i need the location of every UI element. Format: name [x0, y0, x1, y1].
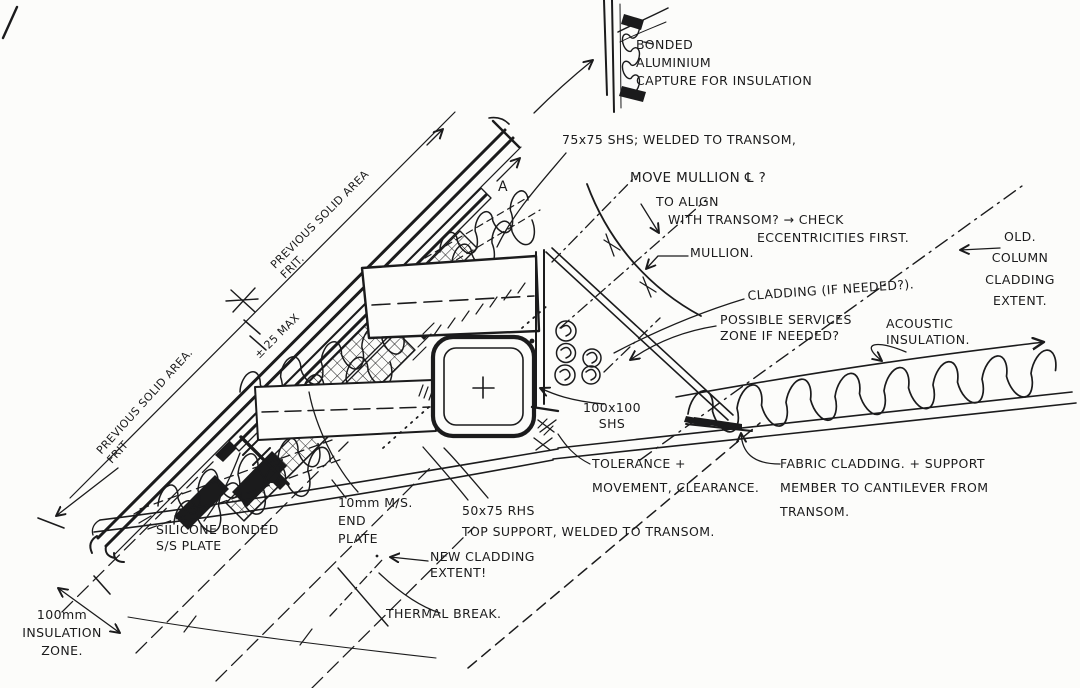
- label-to-align: TO ALIGN: [656, 194, 719, 210]
- label-with-transom: WITH TRANSOM? → CHECK: [668, 212, 844, 228]
- label-eccentricities: ECCENTRICITIES FIRST.: [757, 230, 909, 246]
- label-possible-services: POSSIBLE SERVICES ZONE IF NEEDED?: [720, 312, 852, 345]
- acoustic-band: [676, 342, 1056, 432]
- label-acoustic-insulation: ACOUSTIC INSULATION.: [886, 316, 970, 349]
- arrow-bottom-left: [56, 468, 118, 516]
- shs-box: [413, 323, 553, 436]
- label-insulation-zone: 100mm INSULATION ZONE.: [14, 606, 110, 660]
- label-75x75-shs: 75x75 SHS; WELDED TO TRANSOM,: [562, 132, 796, 148]
- label-fabric-cladding: FABRIC CLADDING. + SUPPORT MEMBER TO CAN…: [780, 452, 988, 523]
- label-move-mullion: MOVE MULLION ℄ ?: [630, 170, 766, 188]
- leader-mullion: [646, 256, 688, 269]
- corner-tick: [3, 7, 17, 38]
- rhs-bar-upper: [362, 256, 539, 338]
- label-end-plate: 10mm M/S. END PLATE: [338, 494, 413, 548]
- label-bonded-capture: BONDED ALUMINIUM CAPTURE FOR INSULATION: [636, 36, 812, 90]
- leader-50x75-a: [423, 447, 468, 500]
- label-100x100-shs: 100x100 SHS: [576, 400, 648, 433]
- end-plate: [532, 250, 558, 411]
- construction-lines: [62, 176, 1022, 688]
- arrow-inset: [534, 60, 593, 113]
- label-old-column-extent: OLD. COLUMN CLADDING EXTENT.: [972, 226, 1068, 311]
- rhs-bar-lower: [255, 380, 436, 440]
- services-circles: [555, 321, 601, 385]
- label-thermal-break: THERMAL BREAK.: [386, 606, 501, 622]
- sketch-page: BONDED ALUMINIUM CAPTURE FOR INSULATION …: [0, 0, 1080, 688]
- label-silicone-bonded: SILICONE BONDED S/S PLATE: [156, 522, 279, 555]
- label-section-a: A: [498, 178, 508, 196]
- label-new-cladding-extent: NEW CLADDING EXTENT!: [430, 549, 535, 582]
- label-mullion: MULLION.: [690, 245, 754, 261]
- label-tolerance: TOLERANCE + MOVEMENT, CLEARANCE.: [592, 452, 759, 500]
- leader-new-cladding: [390, 557, 428, 561]
- label-50x75-rhs: 50x75 RHS TOP SUPPORT, WELDED TO TRANSOM…: [462, 500, 715, 543]
